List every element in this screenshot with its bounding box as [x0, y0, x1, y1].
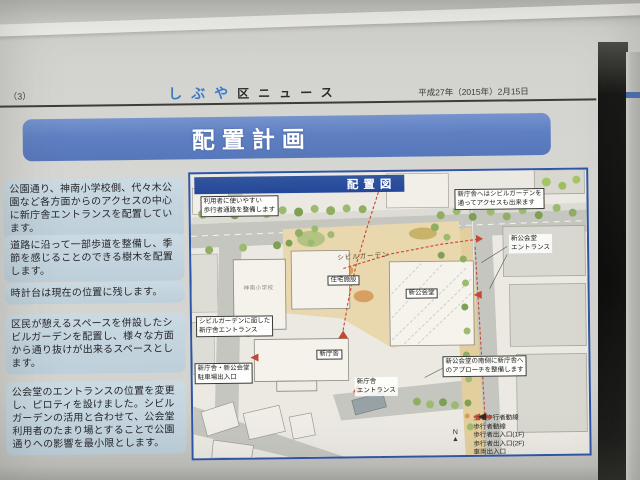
- annotation-walkway: 利用者に使いやすい 歩行者通路を整備します: [200, 195, 278, 217]
- masthead-kana: や: [214, 83, 228, 103]
- annotation-south-approach: 新公会堂の南側に新庁舎へ のアプローチを整備します: [442, 355, 526, 377]
- map-title-band: 配置図: [194, 175, 404, 195]
- masthead-text: 区ニュース: [237, 83, 342, 101]
- adjacent-page-edge: [626, 52, 640, 480]
- legend-row: 車両出入口: [474, 446, 525, 455]
- page-number: （3）: [8, 89, 31, 102]
- annotation-garden-access: 新庁舎へはシビルガーデンを 通ってアクセスも出来ます: [454, 188, 545, 210]
- map-title: 配置図: [347, 175, 397, 192]
- issue-date: 平成27年（2015年）2月15日: [418, 85, 529, 98]
- north-arrow-icon: ▲: [452, 436, 459, 443]
- legend-label: 車両出入口: [474, 445, 507, 455]
- label-housing: 住宅施設: [327, 275, 359, 285]
- masthead-kana: ぶ: [191, 83, 205, 103]
- note-box: 公会堂のエントランスの位置を変更し、ピロティを設けました。シビルガーデンの活用と…: [6, 380, 187, 455]
- note-box: 時計台は現在の位置に残します。: [5, 281, 185, 304]
- site-plan-figure: 配置図 利用者に使いやすい 歩行者通路を整備します 新庁舎へはシビルガーデンを …: [188, 167, 591, 460]
- page-fold-edge: [0, 2, 640, 37]
- annotation-parking: 新庁舎・新公会堂 駐車場出入口: [194, 363, 252, 385]
- north-compass: N ▲: [447, 429, 463, 443]
- note-box: 公園通り、神南小学校側、代々木公園など各方面からのアクセスの中心に新庁舎エントラ…: [3, 177, 184, 239]
- article-title: 配置計画: [192, 120, 312, 155]
- vehicle-entrance-symbol: [473, 413, 493, 421]
- adjacent-page-mark: [626, 92, 640, 98]
- note-box: 区民が憩えるスペースを併設したシビルガーデンを配置し、様々な方面から通り抜けが出…: [5, 312, 186, 374]
- masthead-kana: し: [168, 83, 182, 103]
- label-new-office: 新庁舎: [316, 349, 342, 359]
- newspaper-page: （3） し ぶ や 区ニュース 平成27年（2015年）2月15日 配置計画 公…: [0, 0, 640, 480]
- annotation-office-entrance: 新庁舎 エントランス: [355, 377, 398, 397]
- label-school: 神南小学校: [244, 283, 274, 291]
- masthead: し ぶ や 区ニュース: [168, 81, 342, 103]
- newspaper-photo: （3） し ぶ や 区ニュース 平成27年（2015年）2月15日 配置計画 公…: [0, 0, 640, 480]
- label-new-hall: 新公会堂: [406, 288, 438, 298]
- page-gap-shadow: [598, 42, 628, 480]
- map-legend: 主な歩行者動線 歩行者動線 歩行者出入口(1F) 歩行者出入口(2F) 車両出入…: [473, 412, 524, 455]
- annotation-garden-front-entrance: シビルガーデンに面した 新庁舎エントランス: [196, 315, 274, 337]
- note-box: 道路に沿って一部歩道を整備し、季節を感じることのできる樹木を配置します。: [4, 233, 185, 282]
- annotation-hall-entrance: 新公会堂 エントランス: [509, 234, 552, 254]
- compass-label: N: [453, 429, 458, 436]
- article-title-banner: 配置計画: [23, 113, 551, 161]
